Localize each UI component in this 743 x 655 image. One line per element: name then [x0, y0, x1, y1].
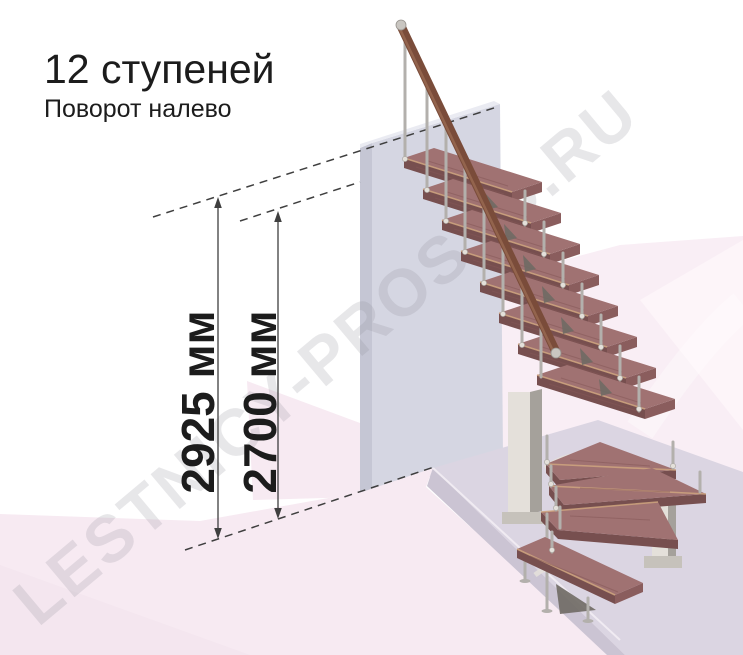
baluster-joint — [500, 311, 505, 316]
stair-diagram-page: LESTNICY-PROSTO.RU — [0, 0, 743, 655]
baluster-joint — [481, 280, 486, 285]
column-lit-face — [508, 392, 530, 514]
page-title: 12 ступеней — [44, 46, 275, 92]
rod-joint — [560, 282, 565, 287]
rod-joint — [670, 463, 675, 468]
dimension-label-walk-height: 2700 мм — [234, 310, 286, 493]
stair-diagram: LESTNICY-PROSTO.RU — [0, 0, 743, 655]
rod-joint — [579, 313, 584, 318]
rod-joint — [522, 220, 527, 225]
leg-foot — [583, 619, 594, 623]
rod-joint — [549, 547, 554, 552]
baluster-joint — [424, 187, 429, 192]
baluster-joint — [402, 156, 407, 161]
rod-joint — [553, 505, 558, 510]
rod-joint — [544, 459, 549, 464]
rod-joint — [598, 344, 603, 349]
rod-joint — [548, 481, 553, 486]
central-support-column — [502, 389, 548, 524]
handrail-top-cap — [396, 20, 406, 30]
rod-foot — [542, 609, 553, 613]
baluster-joint — [462, 249, 467, 254]
column-shade-face — [530, 389, 542, 514]
dimension-label-total-height: 2925 мм — [172, 310, 224, 493]
handrail-end-cap — [551, 348, 561, 358]
baluster-joint — [519, 342, 524, 347]
leg-foot — [520, 579, 531, 583]
baluster-joint — [443, 218, 448, 223]
page-subtitle: Поворот налево — [44, 95, 232, 123]
rod-joint — [617, 375, 622, 380]
rod-joint — [636, 406, 641, 411]
rod-joint — [541, 251, 546, 256]
column-base-plate — [644, 556, 682, 568]
